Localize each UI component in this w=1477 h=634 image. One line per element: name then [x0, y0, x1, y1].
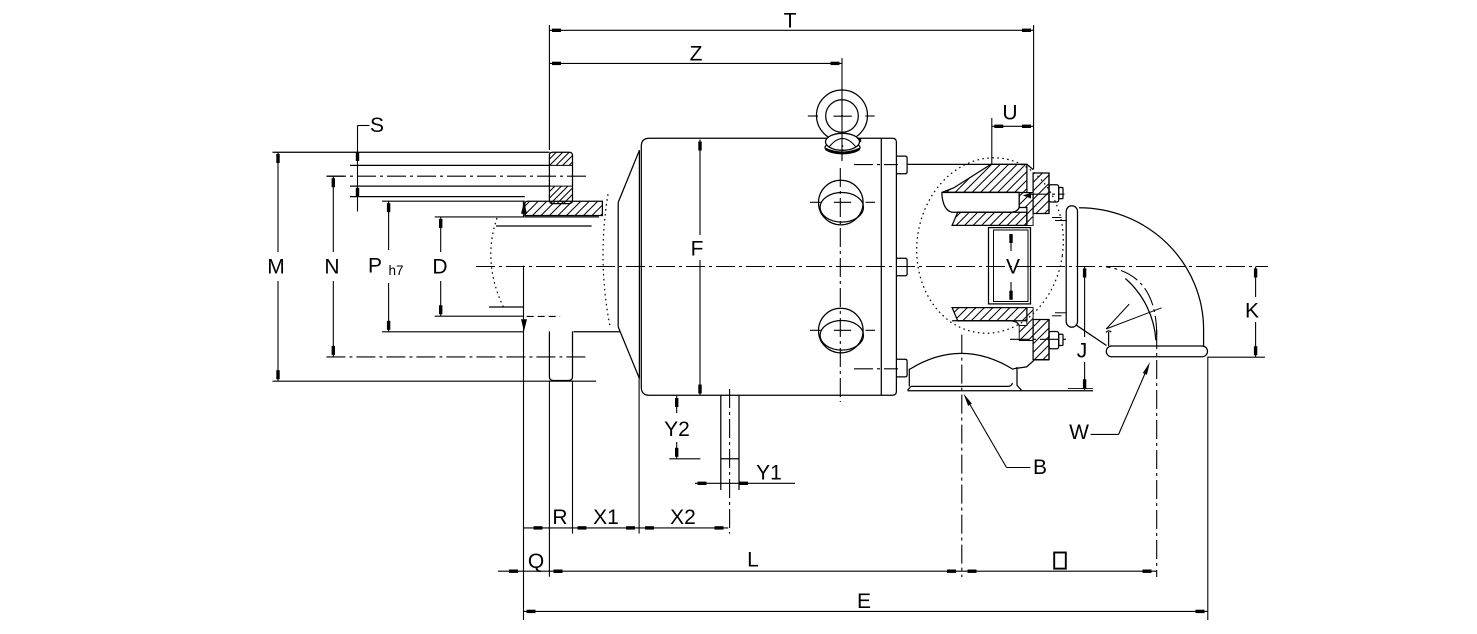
svg-text:V: V — [1006, 256, 1020, 279]
svg-text:T: T — [784, 10, 797, 33]
svg-text:Y1: Y1 — [756, 462, 782, 485]
svg-text:X2: X2 — [670, 506, 696, 529]
svg-text:X1: X1 — [593, 506, 619, 529]
svg-text:h7: h7 — [389, 263, 404, 278]
svg-text:U: U — [1002, 102, 1017, 125]
svg-text:D: D — [432, 256, 447, 279]
svg-text:B: B — [1033, 456, 1047, 479]
svg-text:K: K — [1245, 300, 1259, 323]
svg-text:F: F — [691, 238, 704, 261]
svg-text:P: P — [368, 255, 382, 278]
svg-text:Y2: Y2 — [664, 418, 690, 441]
svg-text:L: L — [747, 549, 759, 572]
svg-text:N: N — [324, 256, 339, 279]
svg-text:R: R — [552, 506, 567, 529]
svg-text:M: M — [267, 256, 285, 279]
svg-text:Z: Z — [690, 43, 703, 66]
svg-text:E: E — [857, 590, 871, 613]
svg-text:J: J — [1077, 340, 1088, 363]
svg-text:W: W — [1069, 421, 1089, 444]
svg-text:Q: Q — [528, 550, 544, 573]
svg-text:S: S — [370, 114, 384, 137]
